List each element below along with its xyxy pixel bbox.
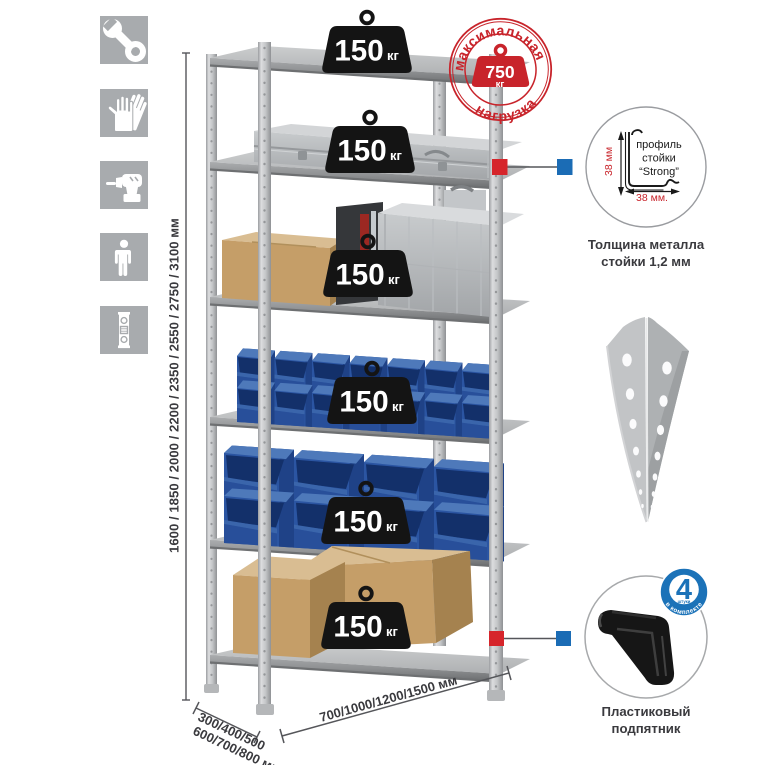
svg-text:“Strong”: “Strong” — [639, 166, 679, 178]
svg-text:1600 / 1850 / 2000 / 2200 / 23: 1600 / 1850 / 2000 / 2200 / 2350 / 2550 … — [167, 218, 182, 553]
svg-text:стойки 1,2 мм: стойки 1,2 мм — [601, 254, 691, 269]
svg-text:38 мм.: 38 мм. — [636, 192, 668, 204]
svg-text:38 мм: 38 мм — [603, 147, 615, 176]
svg-text:стойки: стойки — [642, 153, 676, 165]
svg-text:Толщина металла: Толщина металла — [588, 237, 705, 252]
svg-text:профиль: профиль — [636, 139, 682, 151]
svg-text:штуки: штуки — [678, 599, 691, 604]
svg-text:Пластиковый: Пластиковый — [601, 704, 690, 719]
svg-text:кг: кг — [387, 48, 400, 63]
svg-text:кг: кг — [496, 79, 505, 90]
svg-text:150: 150 — [334, 35, 383, 68]
svg-text:подпятник: подпятник — [611, 721, 680, 736]
